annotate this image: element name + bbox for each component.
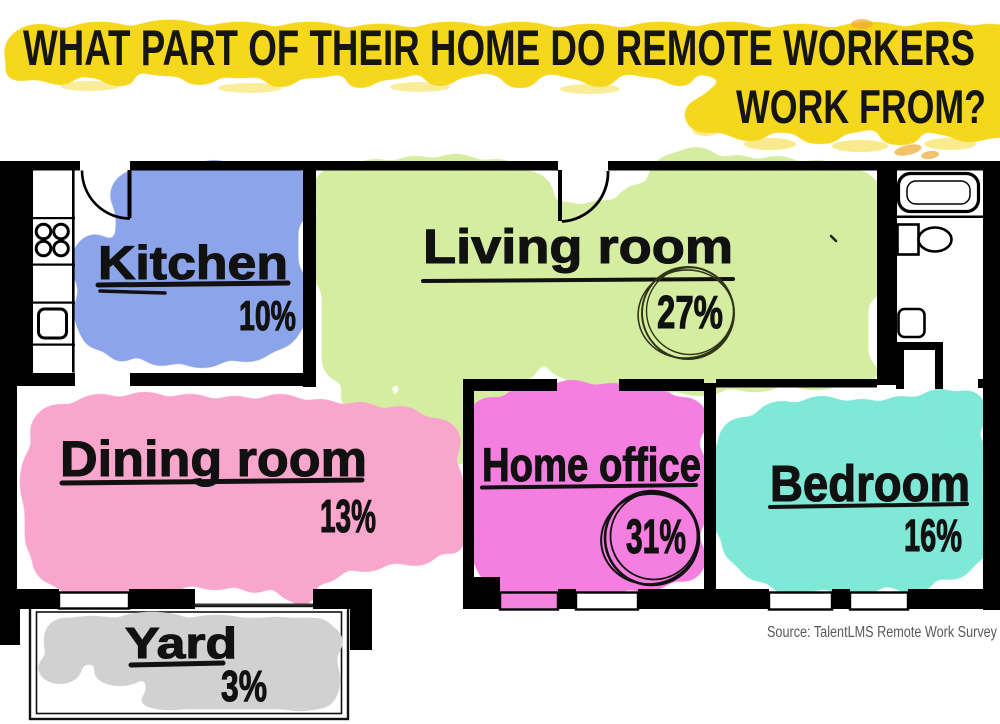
svg-text:3%: 3%: [221, 662, 267, 711]
svg-text:27%: 27%: [657, 286, 723, 338]
svg-text:Source: TalentLMS Remote Work: Source: TalentLMS Remote Work Survey: [767, 624, 997, 641]
svg-text:31%: 31%: [626, 511, 686, 564]
svg-text:10%: 10%: [239, 292, 296, 339]
svg-text:Home office: Home office: [482, 438, 701, 491]
svg-text:WHAT PART OF THEIR HOME DO REM: WHAT PART OF THEIR HOME DO REMOTE WORKER…: [23, 20, 975, 76]
svg-text:13%: 13%: [320, 490, 376, 542]
svg-text:WORK FROM?: WORK FROM?: [736, 80, 986, 133]
svg-text:16%: 16%: [904, 510, 962, 561]
